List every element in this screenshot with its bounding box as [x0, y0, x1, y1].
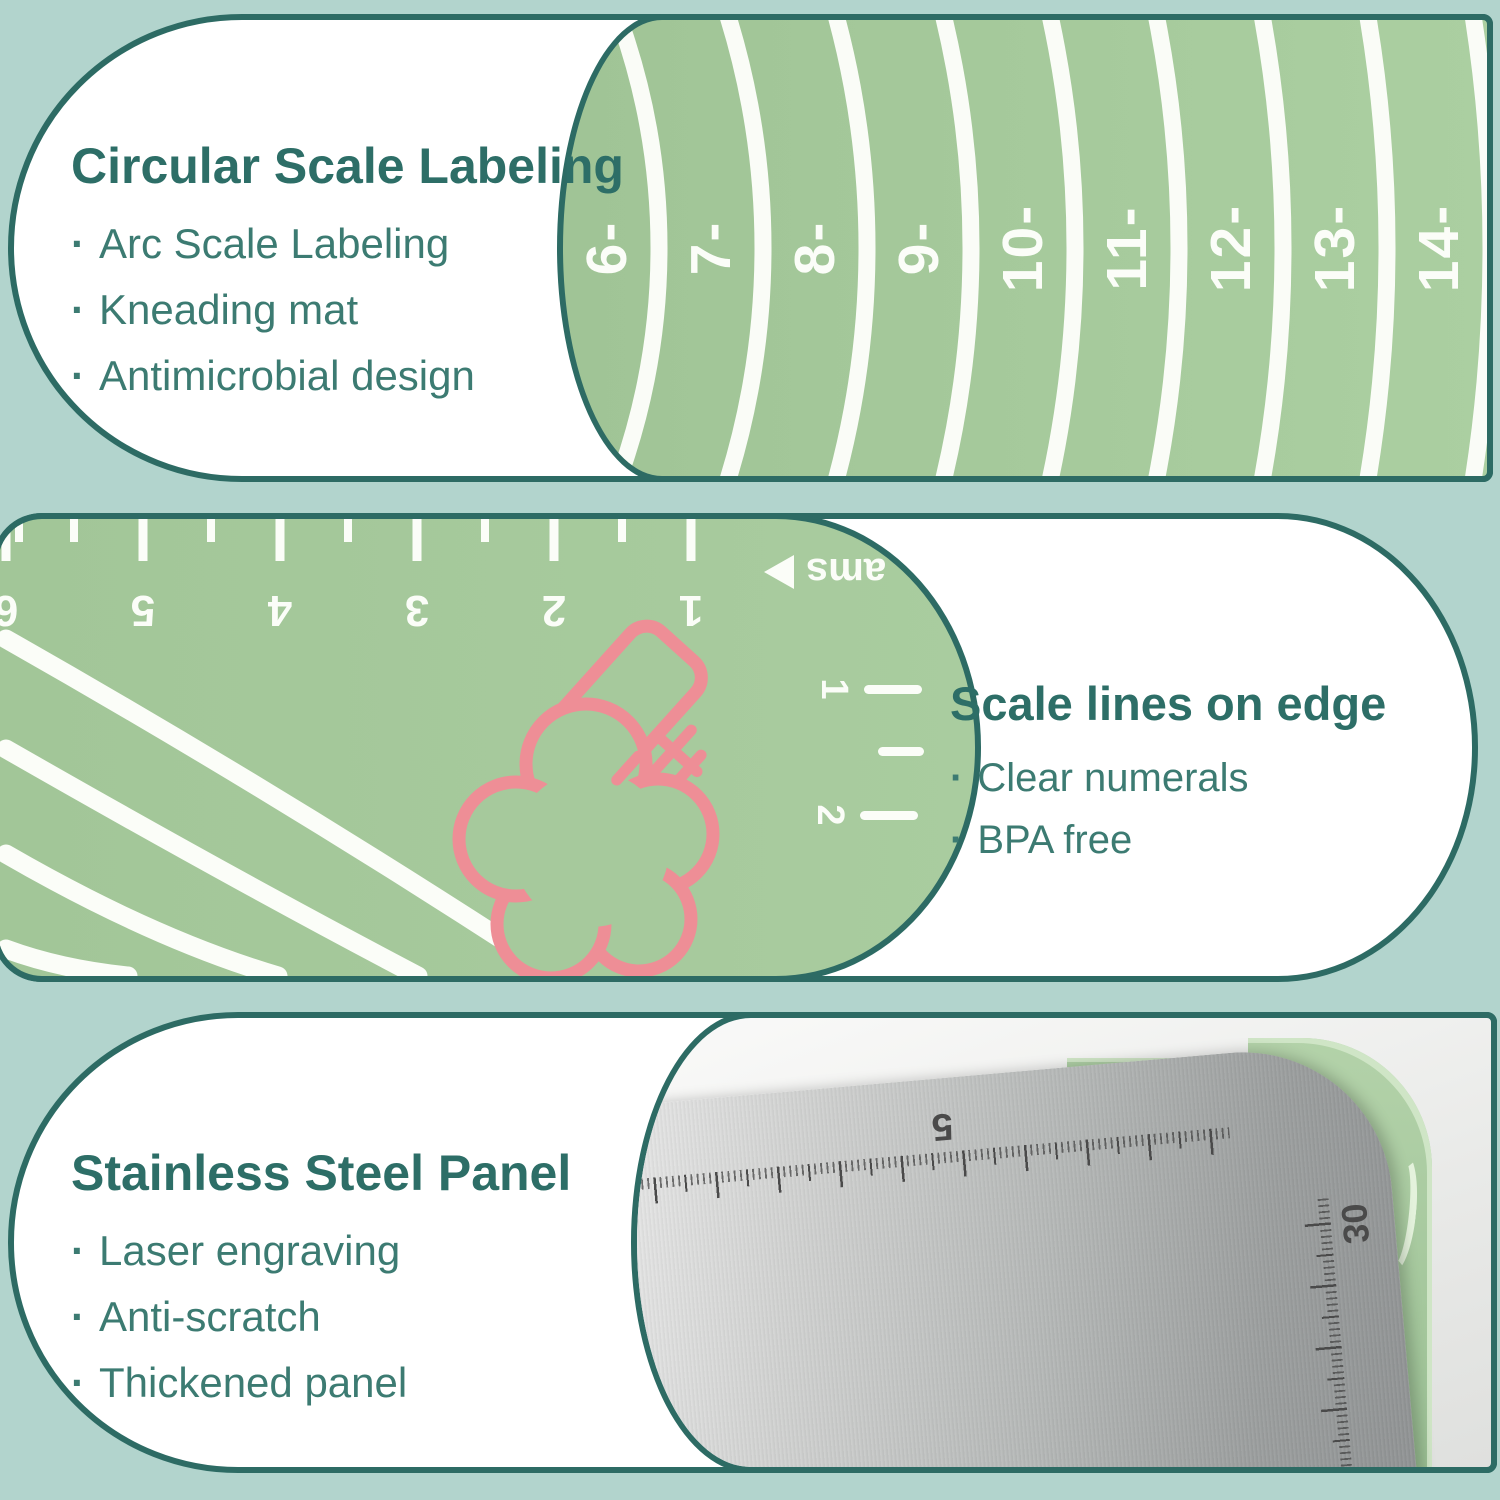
arc-scale-number: 10-	[993, 183, 1053, 313]
engraved-ruler-top	[631, 1127, 1231, 1209]
cloud-outline-icon	[446, 669, 736, 982]
feature-heading: Circular Scale Labeling	[71, 137, 624, 195]
feature-bullet-list: Clear numeralsBPA free	[950, 747, 1386, 871]
arc-scale-number: 12-	[1201, 183, 1261, 313]
feature-bullet-list: Laser engravingAnti-scratchThickened pan…	[71, 1218, 571, 1416]
product-infographic: Circular Scale Labeling Arc Scale Labeli…	[0, 0, 1500, 1500]
ruler-ticks-short	[0, 519, 738, 542]
arc-scale-number: 13-	[1305, 183, 1365, 313]
arc-scale-number: 14-	[1409, 183, 1469, 313]
ruler-number: 3	[377, 585, 457, 635]
ruler-number: 4	[240, 585, 320, 635]
cm-tick	[860, 811, 918, 820]
feature-bullet: Kneading mat	[71, 277, 624, 343]
ruler-number: 5	[930, 1103, 955, 1148]
cm-tick	[864, 685, 922, 694]
left-arrow-icon	[764, 555, 794, 589]
edge-scale-text: Scale lines on edge Clear numeralsBPA fr…	[950, 676, 1386, 871]
feature-heading: Scale lines on edge	[950, 676, 1386, 731]
steel-panel-text: Stainless Steel Panel Laser engravingAnt…	[71, 1144, 571, 1416]
feature-heading: Stainless Steel Panel	[71, 1144, 571, 1202]
ruler-number: 10	[631, 1135, 643, 1182]
photo-kneading-mat-arcs: 6-7-8-9-10-11-12-13-14-	[557, 14, 1493, 482]
edge-scale-number: 1	[812, 667, 856, 711]
arc-scale-number: 7-	[681, 183, 741, 313]
feature-bullet-list: Arc Scale LabelingKneading matAntimicrob…	[71, 211, 624, 409]
steel-panel-surface: 10 5 30	[631, 1040, 1424, 1473]
feature-bullet: Clear numerals	[950, 747, 1386, 809]
feature-card-steel-panel: Stainless Steel Panel Laser engravingAnt…	[8, 1012, 1497, 1473]
unit-row: ams	[764, 549, 886, 594]
feature-bullet: Anti-scratch	[71, 1284, 571, 1350]
feature-bullet: Laser engraving	[71, 1218, 571, 1284]
feature-bullet: Antimicrobial design	[71, 343, 624, 409]
circular-scale-text: Circular Scale Labeling Arc Scale Labeli…	[71, 137, 624, 409]
arc-scale-number: 11-	[1097, 183, 1157, 313]
arc-scale-number: 9-	[889, 183, 949, 313]
feature-bullet: Thickened panel	[71, 1350, 571, 1416]
ruler-number: 2	[514, 585, 594, 635]
feature-bullet: Arc Scale Labeling	[71, 211, 624, 277]
photo-steel-panel: 10 5 30	[631, 1012, 1497, 1473]
ruler-number: 30	[1332, 1202, 1377, 1246]
photo-kneading-mat-edge: 654321 ams 1 2	[0, 513, 981, 982]
edge-scale-number: 2	[808, 793, 852, 837]
arc-scale-number: 8-	[785, 183, 845, 313]
unit-label-mirrored: ams	[806, 549, 886, 594]
ruler-number: 5	[103, 585, 183, 635]
feature-card-circular-scale: Circular Scale Labeling Arc Scale Labeli…	[8, 14, 1493, 482]
feature-bullet: BPA free	[950, 809, 1386, 871]
cm-tick	[878, 747, 924, 756]
ruler-number: 6	[0, 585, 46, 635]
feature-card-edge-scale: 654321 ams 1 2	[0, 513, 1478, 982]
